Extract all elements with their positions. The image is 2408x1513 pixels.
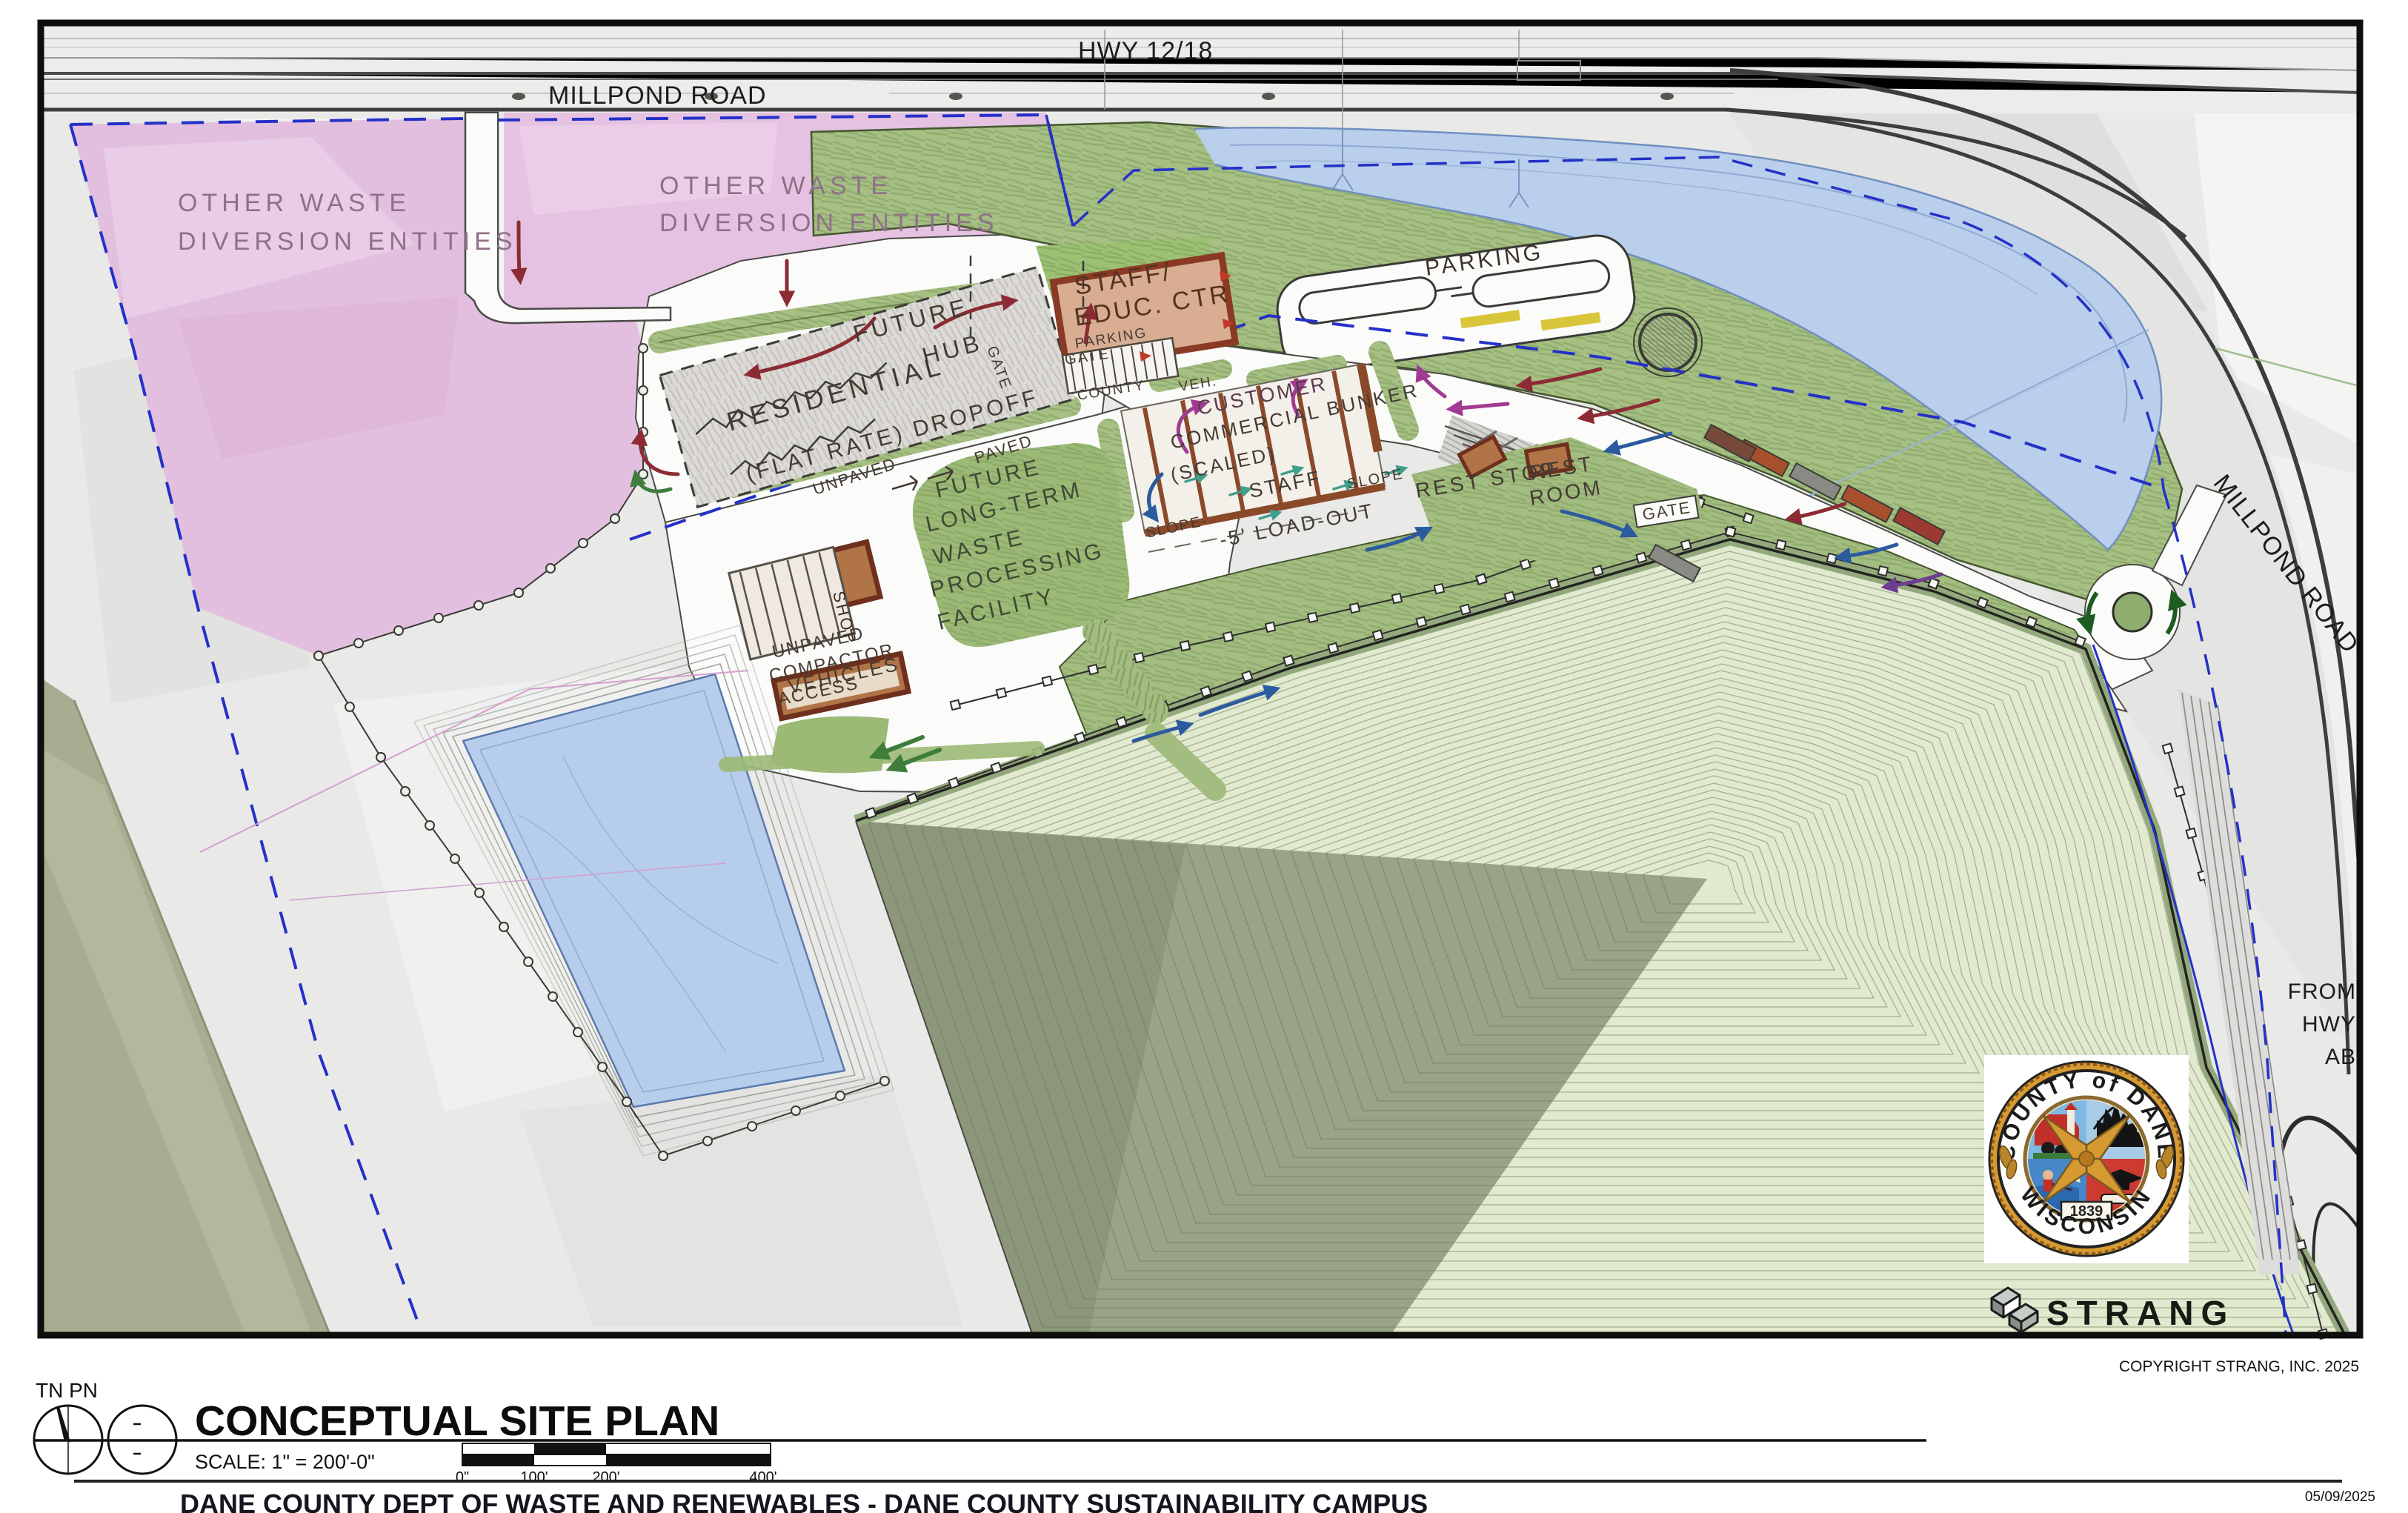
svg-text:200': 200' [592, 1469, 619, 1486]
svg-text:TN PN: TN PN [36, 1379, 98, 1402]
svg-text:OTHER WASTE: OTHER WASTE [659, 172, 892, 200]
svg-text:MILLPOND ROAD: MILLPOND ROAD [548, 82, 767, 110]
svg-text:DANE COUNTY DEPT OF WASTE AND: DANE COUNTY DEPT OF WASTE AND RENEWABLES… [180, 1489, 1428, 1513]
svg-text:CONCEPTUAL SITE PLAN: CONCEPTUAL SITE PLAN [195, 1397, 719, 1445]
svg-text:COPYRIGHT STRANG, INC. 2025: COPYRIGHT STRANG, INC. 2025 [2119, 1358, 2359, 1375]
svg-text:HWY: HWY [2302, 1012, 2356, 1037]
svg-text:DIVERSION ENTITIES: DIVERSION ENTITIES [659, 209, 999, 237]
svg-text:SCALE: 1" = 200'-0": SCALE: 1" = 200'-0" [195, 1451, 375, 1473]
svg-text:AB: AB [2325, 1045, 2356, 1069]
svg-text:0": 0" [456, 1469, 469, 1486]
svg-text:FROM: FROM [2288, 980, 2356, 1004]
svg-text:100': 100' [520, 1469, 548, 1486]
svg-text:HWY 12/18: HWY 12/18 [1078, 37, 1213, 65]
svg-text:STRANG: STRANG [2046, 1294, 2235, 1332]
svg-text:05/09/2025: 05/09/2025 [2305, 1489, 2375, 1505]
svg-text:400': 400' [749, 1469, 776, 1486]
svg-text:DIVERSION ENTITIES: DIVERSION ENTITIES [178, 227, 517, 256]
svg-text:OTHER WASTE: OTHER WASTE [178, 189, 410, 217]
